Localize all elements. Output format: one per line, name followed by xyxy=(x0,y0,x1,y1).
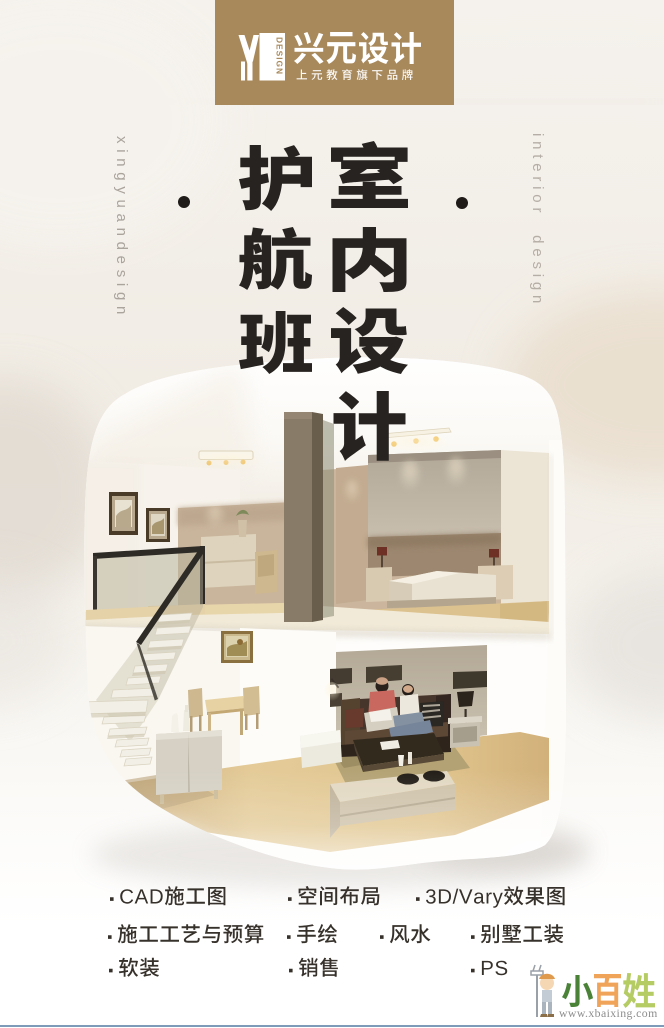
svg-text:www.xbaixing.com: www.xbaixing.com xyxy=(559,1006,658,1020)
